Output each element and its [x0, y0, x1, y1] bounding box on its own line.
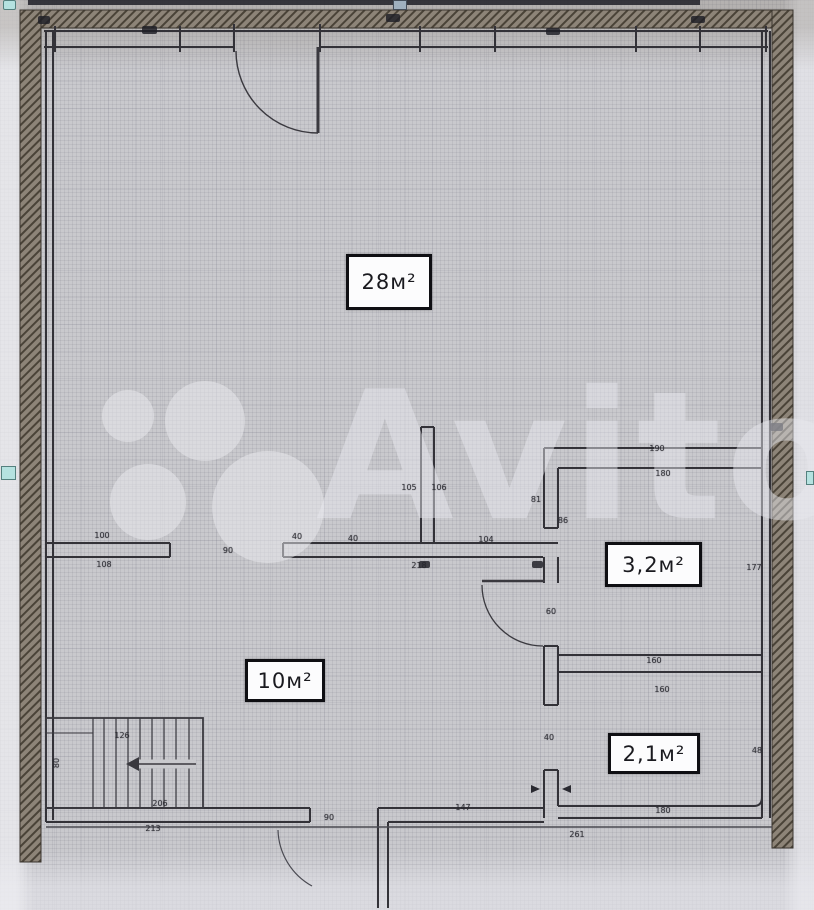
dimension-label: 180 [655, 470, 670, 478]
selection-handle-top-left[interactable] [3, 0, 16, 10]
dimension-label: 90 [223, 547, 233, 555]
room-label-2-1: 2,1м² [608, 733, 700, 774]
floor-plan-photo: Avito 28м² 3,2м² 10м² 2,1м² 100108904040… [0, 0, 814, 910]
dimension-label: 100 [94, 532, 109, 540]
dimension-label: 105 [401, 484, 416, 492]
dimension-label: 40 [292, 533, 302, 541]
dimension-label: 177 [746, 564, 761, 572]
dimension-label: 48 [752, 747, 762, 755]
dimension-label: 213 [145, 825, 160, 833]
dimension-label: 147 [455, 804, 470, 812]
dimension-label: 218 [411, 562, 426, 570]
dimension-label: 206 [152, 800, 167, 808]
bottom-door [278, 830, 312, 886]
dimension-label: 80 [53, 758, 61, 768]
dimension-label: 60 [546, 608, 556, 616]
corridor-door [482, 581, 545, 646]
dimension-label: 180 [655, 807, 670, 815]
dimension-label: 40 [348, 535, 358, 543]
dimension-label: 90 [324, 814, 334, 822]
dimension-label: 190 [649, 445, 664, 453]
dimension-label: 106 [431, 484, 446, 492]
dimension-label: 40 [544, 734, 554, 742]
selection-handle-right-middle[interactable] [806, 471, 814, 485]
door-width-ticks [531, 785, 571, 793]
room-label-3-2: 3,2м² [605, 542, 702, 587]
room-area-text: 28м² [362, 270, 417, 294]
dimension-label: 108 [96, 561, 111, 569]
dimension-label: 86 [558, 517, 568, 525]
dimension-label: 261 [569, 831, 584, 839]
room-area-text: 10м² [258, 669, 313, 693]
selection-handle-top-center[interactable] [393, 0, 407, 10]
dimension-label: 160 [646, 657, 661, 665]
top-door [236, 47, 318, 133]
room-label-28: 28м² [346, 254, 432, 310]
dimension-label: 126 [114, 732, 129, 740]
dimension-label: 160 [654, 686, 669, 694]
room-area-text: 2,1м² [623, 742, 686, 766]
selection-handle-left-middle[interactable] [1, 466, 16, 480]
room-label-10: 10м² [245, 659, 325, 702]
perimeter-wall-lines [44, 24, 770, 822]
dimension-label: 104 [478, 536, 493, 544]
room-area-text: 3,2м² [622, 553, 685, 577]
dimension-label: 81 [531, 496, 541, 504]
